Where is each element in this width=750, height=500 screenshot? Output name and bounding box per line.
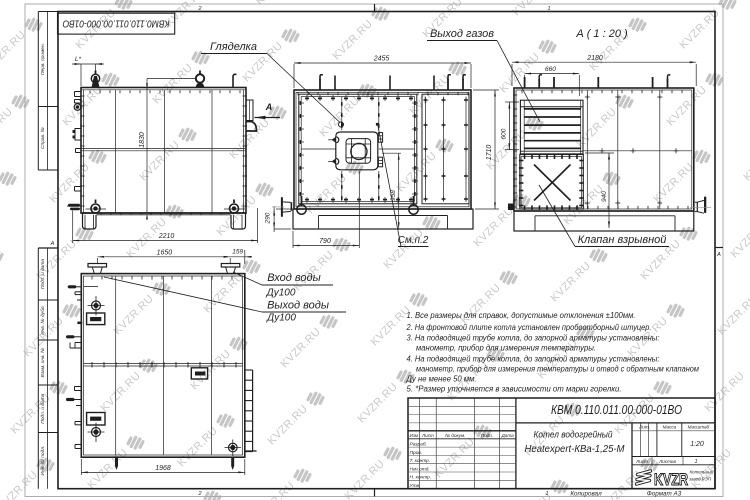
svg-text:Листов: Листов	[658, 459, 676, 464]
svg-text:Лит.: Лит.	[638, 425, 650, 430]
svg-text:1830: 1830	[139, 132, 146, 148]
svg-text:Подп.: Подп.	[481, 433, 493, 438]
svg-text:2: 2	[197, 6, 201, 12]
svg-text:Разраб.: Разраб.	[410, 442, 427, 448]
svg-text:Формат А3: Формат А3	[647, 491, 682, 498]
svg-text:1710: 1710	[486, 145, 493, 161]
svg-text:1650: 1650	[157, 249, 173, 256]
svg-text:Выход газов: Выход газов	[430, 28, 494, 40]
svg-text:Инв. № подл.: Инв. № подл.	[40, 446, 46, 476]
svg-text:Т. контр.: Т. контр.	[410, 458, 431, 464]
svg-text:2455: 2455	[373, 56, 390, 63]
svg-text:L*: L*	[75, 56, 82, 63]
svg-text:Лист: Лист	[421, 433, 434, 438]
svg-text:Дата: Дата	[501, 433, 515, 438]
svg-text:См.п.2: См.п.2	[398, 235, 429, 246]
svg-text:Взам. инв. №: Взам. инв. №	[40, 348, 46, 378]
svg-text:Масштаб: Масштаб	[688, 425, 710, 430]
svg-text:Вход воды: Вход воды	[267, 272, 320, 284]
svg-text:Изм: Изм	[410, 433, 419, 438]
svg-text:Перв. примен.: Перв. примен.	[40, 43, 46, 75]
svg-text:№ докум.: № докум.	[445, 433, 465, 438]
svg-text:600: 600	[501, 128, 508, 139]
svg-text:1:20: 1:20	[690, 441, 704, 448]
svg-text:3. На подводящей трубе котла,: 3. На подводящей трубе котла, до запорно…	[407, 334, 660, 343]
svg-text:Гляделка: Гляделка	[210, 41, 257, 53]
svg-text:Инв. № дубл.: Инв. № дубл.	[40, 305, 46, 335]
svg-text:KVZR: KVZR	[654, 470, 688, 489]
svg-text:Выход воды: Выход воды	[267, 300, 329, 312]
svg-text:2. На фронтовой плите котла ус: 2. На фронтовой плите котла установлен п…	[406, 323, 652, 332]
svg-text:159: 159	[232, 248, 243, 255]
svg-text:1: 1	[547, 6, 550, 12]
svg-text:1: 1	[694, 459, 697, 465]
svg-text:Ду100: Ду100	[266, 288, 296, 299]
svg-text:1968: 1968	[155, 465, 171, 472]
svg-text:Утв.: Утв.	[410, 483, 421, 489]
svg-text:4. На подводящей трубе котла,: 4. На подводящей трубе котла, до запорно…	[407, 355, 660, 364]
svg-text:790: 790	[319, 238, 331, 245]
svg-text:Н. контр.: Н. контр.	[410, 475, 432, 481]
svg-text:Подп. и дата: Подп. и дата	[40, 259, 46, 289]
svg-text:А: А	[716, 252, 721, 258]
svg-text:Нач.отд.: Нач.отд.	[410, 466, 430, 472]
svg-text:2180: 2180	[586, 55, 603, 62]
svg-text:5. *Размер уточняется в зависи: 5. *Размер уточняется в зависимости от м…	[407, 385, 622, 394]
svg-text:Лист: Лист	[635, 459, 648, 464]
svg-text:290: 290	[265, 212, 272, 224]
svg-text:Клапан взрывной: Клапан взрывной	[578, 234, 667, 246]
svg-text:А ( 1 : 20 ): А ( 1 : 20 )	[575, 28, 628, 40]
svg-text:660: 660	[545, 66, 556, 73]
svg-text:А: А	[265, 102, 273, 112]
svg-text:КВМ 0.110.011.00.000-01ВО: КВМ 0.110.011.00.000-01ВО	[551, 403, 682, 417]
svg-text:завод РЭП: завод РЭП	[688, 477, 712, 482]
svg-text:940: 940	[601, 191, 608, 202]
svg-text:2: 2	[197, 491, 201, 497]
svg-text:Ду100: Ду100	[266, 313, 296, 324]
svg-text:Пров.: Пров.	[410, 450, 423, 456]
svg-text:А: А	[50, 241, 55, 247]
svg-text:Справ. №: Справ. №	[40, 127, 46, 149]
svg-text:Heatexpert-КВа-1,25-М: Heatexpert-КВа-1,25-М	[525, 444, 626, 455]
svg-text:манометр, прибор для измерения: манометр, прибор для измерения температу…	[416, 365, 700, 374]
svg-text:Масса: Масса	[663, 425, 677, 430]
svg-text:1. Все размеры для справок, до: 1. Все размеры для справок, допустимые о…	[407, 311, 636, 320]
svg-text:Копировал: Копировал	[570, 491, 602, 498]
svg-text:манометр, прибор для измерения: манометр, прибор для измерения температу…	[416, 344, 596, 353]
svg-text:Подп. и дата: Подп. и дата	[40, 393, 46, 423]
svg-text:Котел водогрейный: Котел водогрейный	[534, 430, 614, 441]
svg-text:Котельный: Котельный	[690, 470, 714, 475]
svg-text:2210: 2210	[158, 233, 175, 240]
svg-text:КВМ0.110.011.00.000-01ВО: КВМ0.110.011.00.000-01ВО	[62, 17, 169, 28]
svg-text:Ду не менее 50 мм.: Ду не менее 50 мм.	[406, 375, 477, 384]
svg-text:1: 1	[545, 491, 548, 497]
